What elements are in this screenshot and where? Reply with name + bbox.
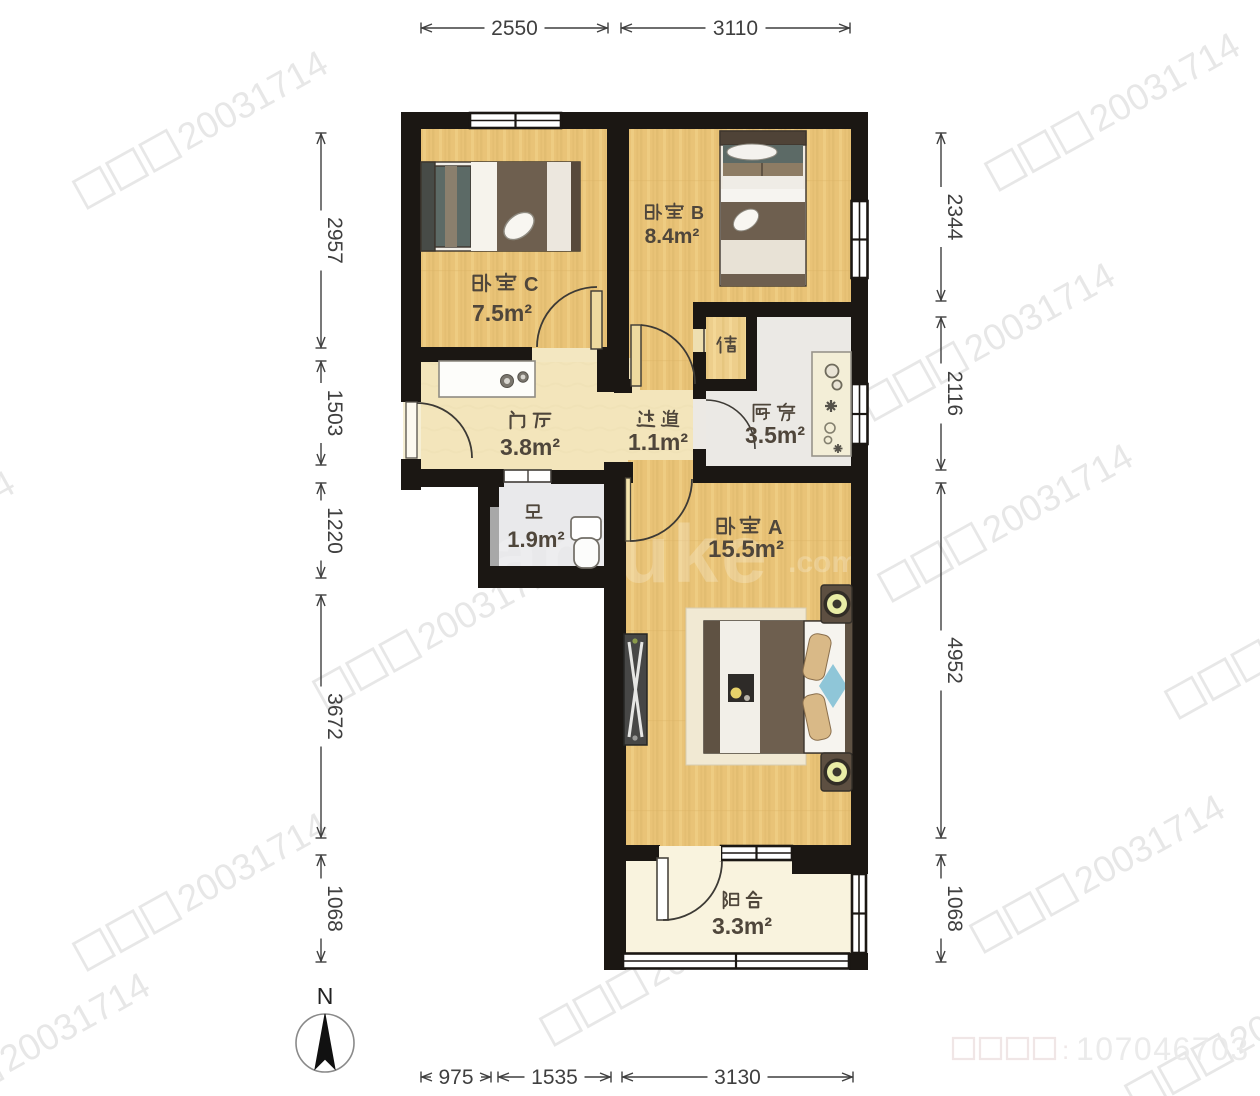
svg-text:15.5m²: 15.5m²	[708, 536, 784, 563]
svg-text:975: 975	[438, 1066, 473, 1089]
svg-text:3.5m²: 3.5m²	[745, 422, 805, 448]
svg-text::: :	[1062, 1035, 1069, 1065]
svg-text:2116: 2116	[943, 371, 966, 416]
svg-text:2957: 2957	[323, 217, 346, 264]
svg-text:1220: 1220	[323, 507, 346, 554]
svg-text:2344: 2344	[943, 194, 966, 241]
svg-text:3130: 3130	[714, 1066, 761, 1089]
svg-text:N: N	[317, 983, 334, 1009]
svg-text:3110: 3110	[713, 17, 758, 40]
svg-text:1.1m²: 1.1m²	[628, 429, 688, 455]
svg-text:8.4m²: 8.4m²	[645, 225, 700, 248]
svg-text:B: B	[691, 203, 704, 223]
svg-text:4952: 4952	[943, 637, 966, 684]
svg-text:1.9m²: 1.9m²	[507, 527, 564, 552]
svg-text:107046703: 107046703	[1076, 1031, 1250, 1067]
svg-text:C: C	[524, 274, 538, 296]
svg-text:1503: 1503	[323, 390, 346, 437]
svg-text:7.5m²: 7.5m²	[472, 300, 532, 326]
svg-text:1068: 1068	[943, 885, 966, 932]
svg-text:.com: .com	[788, 546, 858, 579]
svg-text:3.8m²: 3.8m²	[500, 434, 560, 460]
svg-text:3.3m²: 3.3m²	[712, 913, 772, 939]
svg-text:2550: 2550	[491, 17, 538, 40]
svg-text:1068: 1068	[323, 885, 346, 932]
svg-text:3672: 3672	[323, 693, 346, 740]
svg-text:1535: 1535	[531, 1066, 578, 1089]
